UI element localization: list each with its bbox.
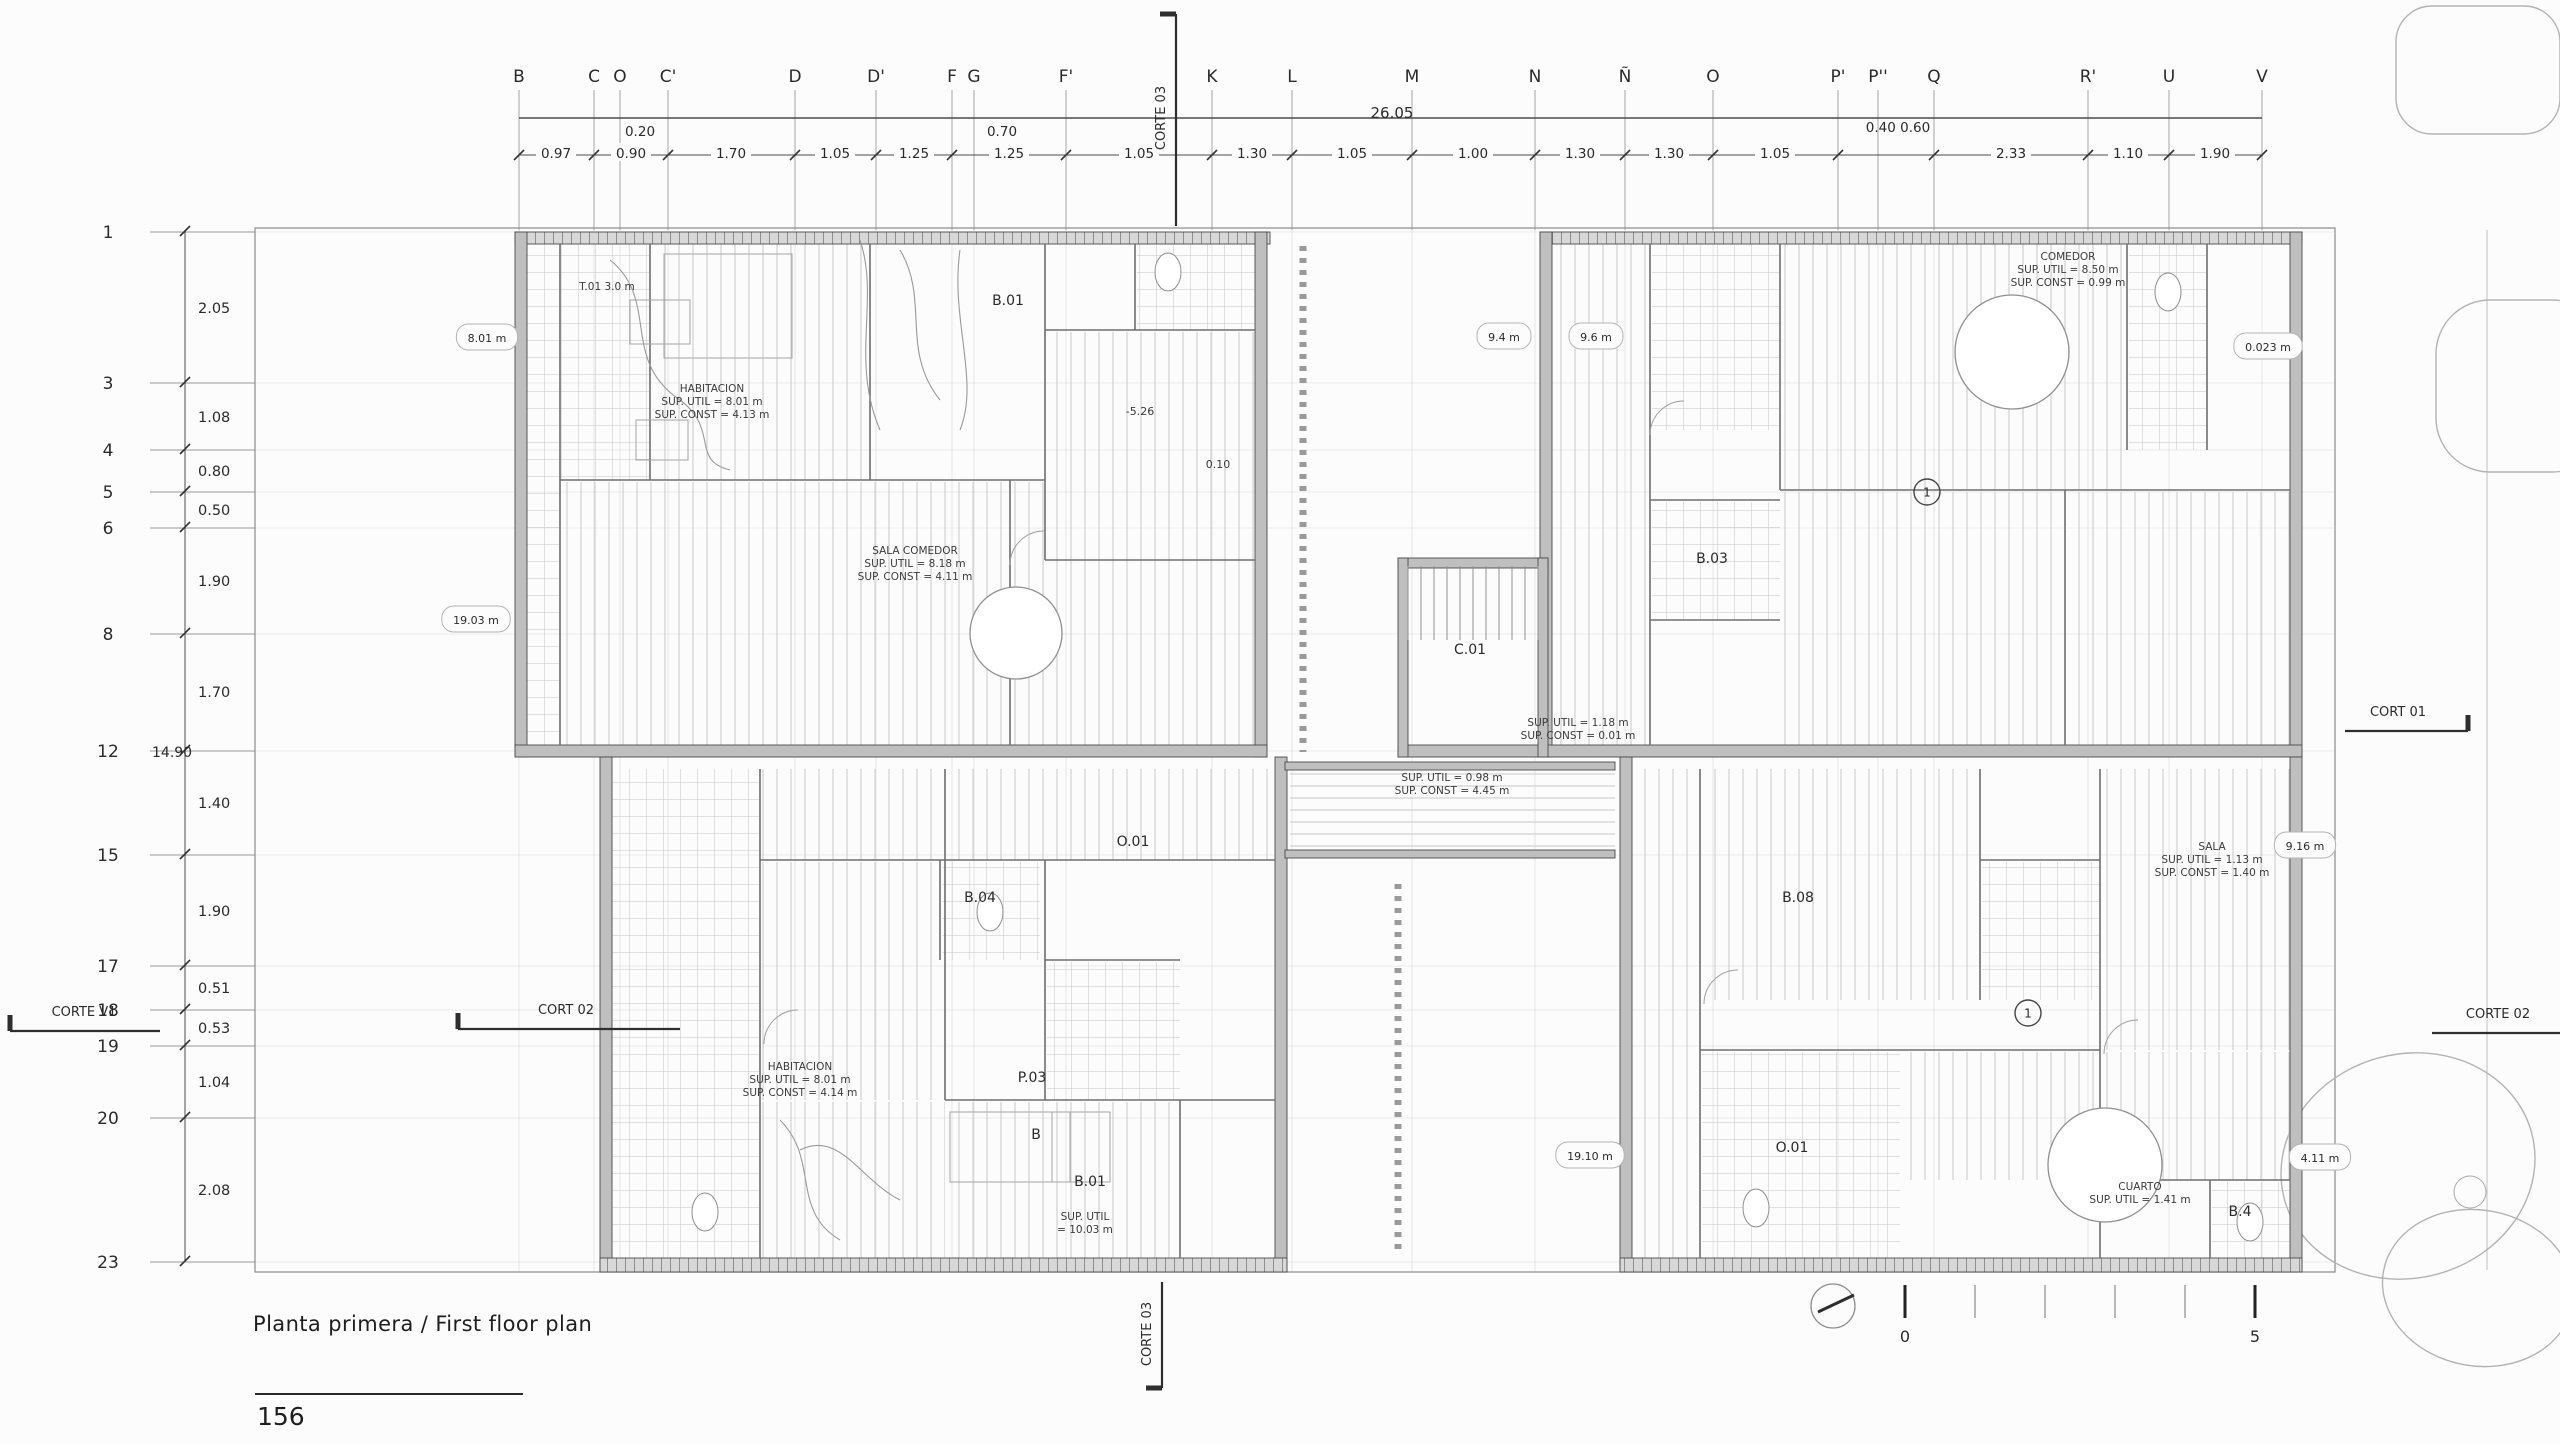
area-callout-text: 8.01 m <box>468 332 507 345</box>
chain-dim-value: 0.97 <box>541 146 571 162</box>
grid-letter: M <box>1405 67 1420 87</box>
plank-floor <box>1782 492 2290 745</box>
grid-letter: F' <box>1059 67 1073 87</box>
room-label: HABITACION <box>680 383 745 395</box>
room-label: SUP. UTIL = 8.01 m <box>749 1074 850 1086</box>
page-number: 156 <box>257 1402 305 1431</box>
room-label: SUP. UTIL = 8.50 m <box>2017 264 2118 276</box>
left-total-dim: 14.90 <box>152 745 192 761</box>
grid-letter: D <box>788 67 801 87</box>
circled-mark-text: 1 <box>2024 1007 2032 1021</box>
room-label: CUARTO <box>2118 1181 2161 1193</box>
grid-letter: C <box>588 67 600 87</box>
room-code: B.03 <box>1696 551 1728 567</box>
chain-dim-value: 1.30 <box>1237 146 1267 162</box>
chain-dim-value: 1.90 <box>2200 146 2230 162</box>
chain-dim-value: 1.25 <box>994 146 1024 162</box>
site-curve <box>2436 300 2560 472</box>
room-label: SUP. CONST = 1.40 m <box>2155 867 2270 879</box>
plank-floor <box>1622 769 1700 1258</box>
plank-floor <box>1702 769 1980 1000</box>
chain-dim-value: 1.05 <box>820 146 850 162</box>
site-curve <box>2396 6 2560 134</box>
sub-dim-value: 0.70 <box>987 124 1017 140</box>
room-label: SUP. CONST = 4.45 m <box>1395 785 1510 797</box>
sub-dim-value: 0.20 <box>625 124 655 140</box>
chain-dim-value: 1.05 <box>1760 146 1790 162</box>
area-callout-text: 4.11 m <box>2301 1152 2340 1165</box>
round-table <box>970 587 1062 679</box>
left-dim-value: 1.08 <box>198 410 230 426</box>
grid-letter: O <box>1706 67 1719 87</box>
chain-dim-value: 1.10 <box>2113 146 2143 162</box>
room-label: SUP. UTIL = 0.98 m <box>1401 772 1502 784</box>
room-code: B.4 <box>2229 1204 2252 1220</box>
level-mark: 0.10 <box>1206 458 1231 471</box>
wall <box>1285 762 1615 770</box>
room-label: SUP. CONST = 4.11 m <box>858 571 973 583</box>
row-number: 3 <box>103 374 114 394</box>
left-dim-value: 1.90 <box>198 574 230 590</box>
left-dim-value: 0.51 <box>198 981 230 997</box>
area-callout-text: 0.023 m <box>2245 341 2291 354</box>
wall <box>1285 850 1615 858</box>
wall <box>1255 232 1267 757</box>
room-code: B.01 <box>1074 1174 1106 1190</box>
drawing-sheet: BCOC'DD'FGF'KLMNÑOP'P''QR'UV26.050.200.7… <box>0 0 2560 1444</box>
chain-dim-value: 1.05 <box>1337 146 1367 162</box>
corte-02-right-label: CORTE 02 <box>2466 1007 2530 1022</box>
corte-v1-left-label: CORTE V1 <box>52 1005 117 1020</box>
row-number: 8 <box>103 625 114 645</box>
bath-fixture <box>1743 1189 1769 1227</box>
row-number: 23 <box>97 1253 119 1273</box>
chain-dim-value: 1.00 <box>1458 146 1488 162</box>
floor-plan-svg: BCOC'DD'FGF'KLMNÑOP'P''QR'UV26.050.200.7… <box>0 0 2560 1444</box>
chain-dim-value: 1.70 <box>716 146 746 162</box>
plank-floor <box>1542 244 1650 745</box>
room-label: SUP. UTIL <box>1061 1211 1110 1223</box>
bath-fixture <box>2155 273 2181 311</box>
chain-dim-value: 0.90 <box>616 146 646 162</box>
room-code: B.01 <box>992 293 1024 309</box>
wall <box>1620 757 1632 1270</box>
chain-dim-value: 1.25 <box>899 146 929 162</box>
wall <box>515 232 1270 244</box>
grid-letter: G <box>967 67 980 87</box>
grid-letter: Q <box>1927 67 1940 87</box>
left-dim-value: 1.04 <box>198 1075 230 1091</box>
row-number: 17 <box>97 957 119 977</box>
grid-letter: K <box>1206 67 1218 87</box>
area-callout-text: 19.03 m <box>453 614 499 627</box>
grid-letter: C' <box>660 67 677 87</box>
room-label: = 10.03 m <box>1057 1224 1113 1236</box>
room-code: B.08 <box>1782 890 1814 906</box>
sketch-lines <box>900 250 967 430</box>
row-number: 4 <box>103 441 114 461</box>
room-label: SUP. UTIL = 1.41 m <box>2089 1194 2190 1206</box>
grid-letter: P' <box>1831 67 1846 87</box>
chain-dim-value: 2.33 <box>1996 146 2026 162</box>
tile-floor <box>1047 962 1180 1100</box>
room-label: SUP. CONST = 4.13 m <box>655 409 770 421</box>
bath-fixture <box>1155 253 1181 291</box>
chain-dim-value: 1.30 <box>1565 146 1595 162</box>
room-label: SUP. CONST = 0.99 m <box>2011 277 2126 289</box>
left-dim-value: 0.80 <box>198 464 230 480</box>
north-needle <box>1818 1295 1854 1312</box>
wall <box>515 232 527 757</box>
wall <box>600 757 612 1270</box>
chain-dim-value: 1.05 <box>1124 146 1154 162</box>
grid-letter: D' <box>867 67 885 87</box>
wall <box>1398 558 1408 757</box>
plank-floor <box>562 482 1010 745</box>
grid-letter: R' <box>2080 67 2097 87</box>
wall <box>1275 757 1287 1270</box>
row-number: 6 <box>103 519 114 539</box>
chain-dim-value: 1.30 <box>1654 146 1684 162</box>
tile-floor <box>1652 244 1780 430</box>
tile-floor <box>1137 244 1255 330</box>
scale-zero-label: 0 <box>1900 1327 1910 1346</box>
wall <box>2290 232 2302 757</box>
left-dim-value: 0.50 <box>198 503 230 519</box>
tile-floor <box>1982 862 2100 1000</box>
room-label: COMEDOR <box>2041 251 2096 263</box>
room-label: SUP. CONST = 0.01 m <box>1521 730 1636 742</box>
grid-letter: U <box>2163 67 2175 87</box>
area-callout-text: 9.16 m <box>2286 840 2325 853</box>
room-label: SUP. CONST = 4.14 m <box>743 1087 858 1099</box>
grid-letter: P'' <box>1868 67 1888 87</box>
row-number: 15 <box>97 846 119 866</box>
grid-letter: F <box>947 67 957 87</box>
left-dim-value: 0.53 <box>198 1021 230 1037</box>
left-dim-value: 1.90 <box>198 904 230 920</box>
grid-letter: V <box>2256 67 2268 87</box>
plank-floor <box>2102 769 2290 1050</box>
plank-floor <box>652 244 870 480</box>
row-number: 20 <box>97 1109 119 1129</box>
plank-floor <box>762 1102 945 1258</box>
room-label: SALA COMEDOR <box>872 545 958 557</box>
room-label: SUP. UTIL = 8.01 m <box>661 396 762 408</box>
tile-floor <box>604 769 760 1258</box>
room-label: SUP. UTIL = 1.13 m <box>2161 854 2262 866</box>
room-code: O.01 <box>1776 1140 1809 1156</box>
room-code: C.01 <box>1454 642 1486 658</box>
scale-five-label: 5 <box>2250 1327 2260 1346</box>
grid-letter: Ñ <box>1619 65 1632 87</box>
wall <box>1398 745 2302 757</box>
room-label: SALA <box>2198 841 2226 853</box>
area-callout-text: 19.10 m <box>1567 1150 1613 1163</box>
round-table <box>1955 295 2069 409</box>
row-number: 19 <box>97 1037 119 1057</box>
area-callout-text: 9.6 m <box>1580 331 1612 344</box>
bath-fixture <box>692 1193 718 1231</box>
tree-outline <box>2370 1195 2560 1382</box>
wall <box>600 1258 1287 1272</box>
drawing-title: Planta primera / First floor plan <box>253 1312 592 1336</box>
plank-floor <box>762 769 1275 860</box>
left-dim-value: 1.70 <box>198 685 230 701</box>
row-number: 5 <box>103 483 114 503</box>
room-label: SUP. UTIL = 8.18 m <box>864 558 965 570</box>
room-label: HABITACION <box>768 1061 833 1073</box>
grid-letter: B <box>513 67 525 87</box>
area-callout-text: 9.4 m <box>1488 331 1520 344</box>
room-code: B.04 <box>964 890 996 906</box>
row-number: 1 <box>103 223 114 243</box>
graphic-scale: 05 <box>1811 1284 2260 1346</box>
left-dim-value: 2.05 <box>198 301 230 317</box>
wall <box>1540 232 2302 244</box>
room-code: P.03 <box>1018 1070 1047 1086</box>
left-dim-value: 2.08 <box>198 1183 230 1199</box>
room-label: SUP. UTIL = 1.18 m <box>1527 717 1628 729</box>
row-number: 12 <box>97 742 119 762</box>
circled-mark-text: 1 <box>1923 486 1931 500</box>
grid-letter: N <box>1529 67 1542 87</box>
room-code: O.01 <box>1117 834 1150 850</box>
level-mark: -5.26 <box>1126 405 1154 418</box>
grid-letter: L <box>1287 67 1297 87</box>
cort-02-left-label: CORT 02 <box>538 1003 594 1018</box>
overall-dim-value: 26.05 <box>1371 104 1414 122</box>
corte-03-top-label: CORTE 03 <box>1154 86 1169 150</box>
room-label: T.01 3.0 m <box>578 281 634 293</box>
cort-01-right-label: CORT 01 <box>2370 705 2426 720</box>
sub-dim-value: 0.40 0.60 <box>1866 120 1930 136</box>
room-code: B <box>1031 1127 1041 1143</box>
tree-dot <box>2454 1176 2486 1208</box>
title-underline <box>255 1393 523 1395</box>
left-dim-value: 1.40 <box>198 796 230 812</box>
wall <box>1620 1258 2302 1272</box>
wall <box>515 745 1267 757</box>
grid-letter: O <box>613 67 626 87</box>
corte-03-bottom-label: CORTE 03 <box>1140 1302 1155 1366</box>
